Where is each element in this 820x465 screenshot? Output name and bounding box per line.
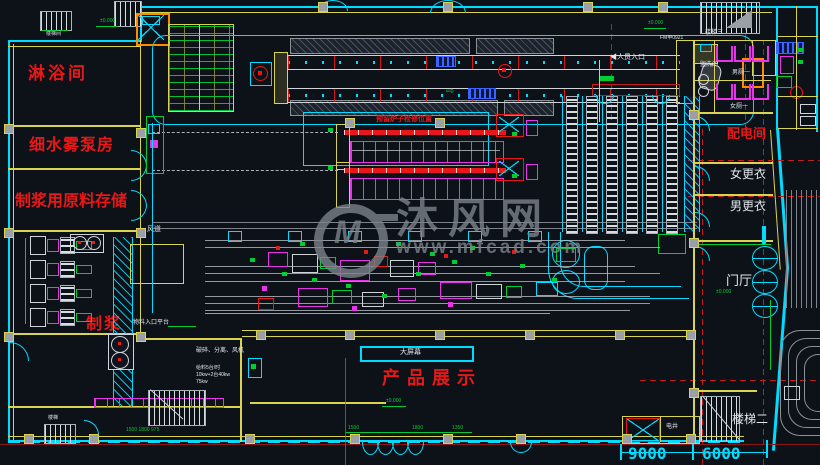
- equip-cluster-3: [320, 257, 336, 269]
- belt-station-3: [348, 231, 362, 242]
- fire-hydrant-dot-left: [258, 71, 262, 75]
- pulping-machine-2: [30, 260, 46, 279]
- belt-line-2: [205, 247, 660, 248]
- furnace-end-station-1-x: [499, 117, 519, 132]
- elevator-tag-box: [142, 16, 160, 25]
- gdot-13: [300, 242, 305, 246]
- dim-bay-1: 9000: [628, 446, 667, 462]
- door-arc-lobby: [695, 246, 710, 261]
- conveyor-hatch-top-2: [476, 38, 554, 54]
- furnace-line-2-rail: [344, 168, 506, 173]
- rdot-1: [276, 246, 280, 250]
- storage-rack-2: [586, 96, 598, 234]
- pulping-machine-2c: [60, 261, 75, 278]
- door-dim-1: 1500: [348, 426, 359, 431]
- material-platform-label: 物料入口平台: [133, 320, 169, 326]
- far-right-wall-h3: [778, 128, 818, 129]
- gdot-4: [346, 284, 351, 288]
- furnace-line-2-cars: [350, 178, 504, 200]
- gdot-10: [552, 278, 557, 282]
- rdot-4: [512, 250, 516, 254]
- elevation-lobby: ±0.000: [716, 290, 731, 295]
- wall-right-div-5: [697, 390, 757, 392]
- wall-bottom-inner-2: [250, 402, 386, 404]
- gdot-7: [452, 260, 457, 264]
- rack-cyan-line-0: [562, 96, 563, 232]
- equip-cluster-6: [390, 260, 414, 277]
- storage-rack-4: [626, 96, 638, 234]
- toilet-stall-6: [752, 84, 769, 100]
- gdot-5: [382, 294, 387, 298]
- hall-cyan-bottom: [205, 313, 550, 314]
- rack-cyan-line-5: [662, 96, 663, 232]
- rdot-2: [364, 250, 368, 254]
- room-label-power-distribution: 配电间: [727, 128, 766, 141]
- belt-station-2: [288, 231, 302, 242]
- mdot-3: [448, 302, 453, 307]
- toilet-stall-1: [716, 46, 733, 62]
- dim-tick-3: [766, 440, 768, 458]
- pulping-machine-1: [30, 236, 46, 255]
- hall-cyan-vertical: [152, 123, 153, 313]
- main-door-arc-4: [407, 442, 424, 455]
- far-right-fixture-2: [800, 116, 816, 126]
- conveyor-hatch-top-1: [290, 38, 470, 54]
- wall-pulping-corridor: [140, 338, 242, 340]
- furnace-end-magenta-2: [526, 164, 538, 180]
- gdot-9: [520, 264, 525, 268]
- axis-line-horizontal-1: [688, 160, 820, 161]
- furnace-left-box: [148, 124, 160, 134]
- furnace-line-1-cars: [350, 141, 504, 163]
- ramp-landing-box: [784, 386, 800, 400]
- furnace-line-2-extension: [152, 170, 338, 171]
- lobby-green-line: [770, 300, 771, 370]
- stairs-bottom-left: [44, 424, 76, 444]
- furnace-dot-2: [512, 132, 517, 136]
- room-label-lobby: 门厅: [726, 274, 752, 287]
- far-right-wall-v: [796, 6, 797, 130]
- equip-cluster-2: [292, 254, 318, 273]
- ramp-line-bundle: [786, 190, 820, 308]
- mdot-2: [352, 306, 357, 311]
- wall-left-partition: [140, 40, 141, 340]
- line-end-machine-left: [274, 52, 288, 104]
- toilet-counter: [700, 44, 712, 52]
- wall-right-vert: [776, 6, 778, 130]
- gdot-3: [312, 278, 317, 282]
- equip-cluster-17: [398, 288, 416, 301]
- gdot-11: [430, 252, 435, 256]
- furnace-note-label: 预留炉子检修位置: [376, 116, 432, 123]
- hall-line-b: [152, 228, 697, 229]
- room-label-female-toilet: 女厕一: [730, 104, 748, 110]
- room-label-male-changing: 男更衣: [730, 200, 766, 212]
- cad-drawing-canvas[interactable]: 淋浴间 细水雾泵房 制浆用原料存储 制浆 风道 楼梯间 ±0.000: [0, 0, 820, 465]
- wall-right-div-top: [693, 40, 773, 41]
- belt-station-4: [408, 231, 422, 242]
- wall-corridor-vert: [240, 340, 242, 442]
- far-right-wall-h1: [778, 36, 818, 37]
- room-label-shaft: 电井: [666, 424, 678, 430]
- storage-rack-3: [606, 96, 618, 234]
- rack-cyan-line-3: [622, 96, 623, 232]
- equip-cluster-9: [476, 284, 502, 299]
- toilet-stall-4: [716, 84, 733, 100]
- dim-bay-2: 6000: [702, 446, 741, 462]
- room-label-raw-storage: 制浆用原料存储: [15, 193, 127, 209]
- furnace-dot-1: [328, 128, 333, 132]
- gdot-2: [282, 272, 287, 276]
- elevation-entrance-line: [644, 28, 666, 29]
- equip-cluster-11: [536, 282, 558, 296]
- door-arc-male: [695, 212, 710, 227]
- gdot-12: [396, 242, 401, 246]
- belt-line-8: [205, 310, 630, 311]
- furnace-dot-3: [328, 166, 333, 170]
- hall-gridline-v: [345, 358, 346, 465]
- equip-cluster-15: [258, 298, 274, 310]
- furnace-end-station-2: [496, 158, 524, 181]
- door-arc-storage-1: [131, 150, 147, 166]
- wall-left: [8, 40, 10, 442]
- right-cluster-magenta: [780, 56, 794, 74]
- tank-dot-2: [118, 358, 121, 361]
- elevation-top-left-line: [96, 26, 118, 27]
- room-label-washroom: 盥洗间: [700, 62, 718, 68]
- door-dims-left-group: 1500 1800 975: [126, 428, 159, 433]
- furnace-line-1-centerline: [352, 150, 500, 151]
- door-arc-bottom-left: [84, 420, 99, 435]
- right-cluster-dot-2: [798, 60, 803, 64]
- equip-note-label: 破碎、分离、风机: [196, 348, 244, 354]
- personnel-entrance-label: ◀人员入口: [610, 54, 645, 61]
- ramp-arc-4: [804, 354, 820, 412]
- door-arc-left-wall: [10, 342, 29, 361]
- wall-right-div-3: [695, 194, 773, 196]
- equip-cluster-13: [298, 288, 328, 307]
- elevation-top-left: ±0.000: [100, 19, 115, 24]
- equip-cluster-12: [556, 248, 576, 262]
- revolving-door-spine: [762, 226, 766, 244]
- entrance-green-mat: [600, 76, 614, 81]
- storage-rack-5: [646, 96, 658, 234]
- door-tag-label: FM甲0921: [660, 36, 683, 41]
- equip-cluster-14: [332, 290, 352, 304]
- stairs-3-triangle: [726, 10, 752, 28]
- gdot-8: [486, 272, 491, 276]
- storage-rack-6: [666, 96, 678, 234]
- material-platform-leader: [168, 326, 196, 327]
- toilet-stall-2: [734, 46, 751, 62]
- room-label-stairs-2: 楼梯二: [732, 413, 768, 425]
- wall-mistpump-bottom: [8, 168, 140, 170]
- wall-hall-mid-1: [242, 330, 694, 331]
- pulping-machine-4c: [60, 309, 75, 326]
- gdot-1: [250, 258, 255, 262]
- pallet-blue-1: [436, 56, 456, 67]
- pulping-machine-3d: [76, 289, 92, 298]
- rack-cyan-line-4: [642, 96, 643, 232]
- equip-cluster-4: [340, 260, 370, 281]
- door-arc-storage-4: [131, 205, 147, 221]
- belt-line-5: [205, 281, 625, 282]
- belt-station-6: [528, 231, 542, 242]
- door-dim-2: 1800: [412, 426, 423, 431]
- sink-2: [698, 86, 709, 97]
- rdot-3: [444, 254, 448, 258]
- door-arc-storage-3: [131, 190, 147, 206]
- room-label-female-changing: 女更衣: [730, 168, 766, 180]
- right-cluster-dot-1: [798, 48, 803, 52]
- pulping-machine-1b: [47, 239, 59, 252]
- right-cluster-green: [776, 76, 792, 88]
- pulping-machine-3c: [60, 285, 75, 302]
- door-dim-line: [346, 432, 472, 433]
- flow-arrow-icon: ⇨: [446, 87, 454, 97]
- wall-toilet-inner-v: [714, 40, 715, 112]
- pallet-blue-2: [468, 88, 496, 99]
- door-arc-storage-2: [131, 165, 147, 181]
- power-note-3: 75kw: [196, 380, 208, 385]
- far-right-fixture-1: [800, 104, 816, 114]
- rack-cyan-line-2: [602, 96, 603, 232]
- mdot-1: [262, 286, 267, 291]
- wall-top-left-inner: [8, 46, 140, 47]
- belt-station-1: [228, 231, 242, 242]
- pulping-machine-2b: [47, 263, 59, 276]
- furnace-end-station-1: [496, 114, 524, 137]
- air-duct-room: [130, 244, 184, 284]
- power-note-2: 10kw+2台40kw: [196, 373, 230, 378]
- wall-shower-bottom: [8, 125, 140, 127]
- pulping-green-spine: [25, 238, 26, 324]
- gdot-14: [470, 246, 475, 250]
- equip-cluster-5: [374, 256, 388, 267]
- door-arc-female: [695, 166, 710, 181]
- revolving-door-2: [752, 270, 778, 294]
- wall-left-inner: [13, 44, 14, 440]
- room-label-stairs-3: 楼梯三: [705, 30, 723, 36]
- equip-cluster-10: [506, 286, 522, 298]
- elevation-hall-line: [382, 406, 406, 407]
- fire-hydrant-dot-mid: [502, 68, 506, 72]
- pulping-machine-4d: [76, 313, 92, 322]
- room-label-shower: 淋浴间: [28, 66, 88, 83]
- toilet-stall-5: [734, 84, 751, 100]
- pulping-mixer-dot-1: [78, 241, 81, 244]
- hall-line-a: [152, 222, 697, 223]
- room-label-product-display: 产品展示: [382, 370, 482, 388]
- equip-cluster-8: [440, 282, 472, 299]
- furnace-dot-4: [512, 174, 517, 178]
- elevation-entrance: ±0.000: [648, 21, 663, 26]
- wall-storage-bottom: [8, 230, 140, 232]
- furnace-line-2-feeder: [336, 162, 350, 208]
- belt-line-6: [205, 296, 650, 297]
- stairs-small-top: [40, 11, 72, 31]
- wall-hall-mid-2: [242, 336, 694, 337]
- door-dim-3: 1350: [452, 426, 463, 431]
- pulping-machine-2d: [76, 265, 92, 274]
- elevation-hall: ±0.000: [386, 399, 401, 404]
- equip-cluster-16: [362, 292, 384, 307]
- furnace-line-1-extension: [152, 132, 338, 133]
- wall-right-div-1: [693, 112, 773, 114]
- pulping-machine-4b: [47, 311, 59, 324]
- room-label-male-toilet: 男厕一: [732, 70, 750, 76]
- pulping-machine-4: [30, 308, 46, 327]
- tank-dot-1: [118, 342, 121, 345]
- furnace-line-1-rail: [344, 130, 506, 135]
- note-equipment-dot: [251, 364, 256, 369]
- revolving-door-1: [752, 246, 778, 270]
- far-right-wall-h2: [778, 96, 818, 97]
- watermark-logo-bar: [372, 214, 398, 221]
- sink-1: [698, 74, 709, 85]
- entrance-wall-v: [599, 60, 600, 122]
- room-label-big-screen: 大屏幕: [400, 349, 421, 356]
- power-note-1: 给料5台/时: [196, 366, 220, 371]
- toilet-stall-3: [752, 46, 769, 62]
- equip-cluster-1: [268, 252, 288, 267]
- wall-top-left: [8, 40, 142, 42]
- room-label-stairs-small: 楼梯: [48, 416, 58, 421]
- gdot-6: [416, 272, 421, 276]
- belt-station-5: [468, 231, 482, 242]
- revolving-door-3: [752, 294, 778, 318]
- rack-cyan-line-1: [582, 96, 583, 232]
- pulping-machine-3: [30, 284, 46, 303]
- wall-right-top: [816, 6, 818, 132]
- room-label-mist-pump: 细水雾泵房: [29, 137, 114, 153]
- wall-right-div-4-green: [697, 244, 771, 245]
- wall-right-div-2: [695, 162, 773, 164]
- pulping-machine-3b: [47, 287, 59, 300]
- pulping-mixer-dot-2: [92, 241, 95, 244]
- room-label-stairs-1: 楼梯间: [46, 32, 61, 37]
- service-rooms-divider: [660, 416, 661, 442]
- furnace-end-magenta-1: [526, 120, 538, 136]
- storage-rack-1: [566, 96, 578, 234]
